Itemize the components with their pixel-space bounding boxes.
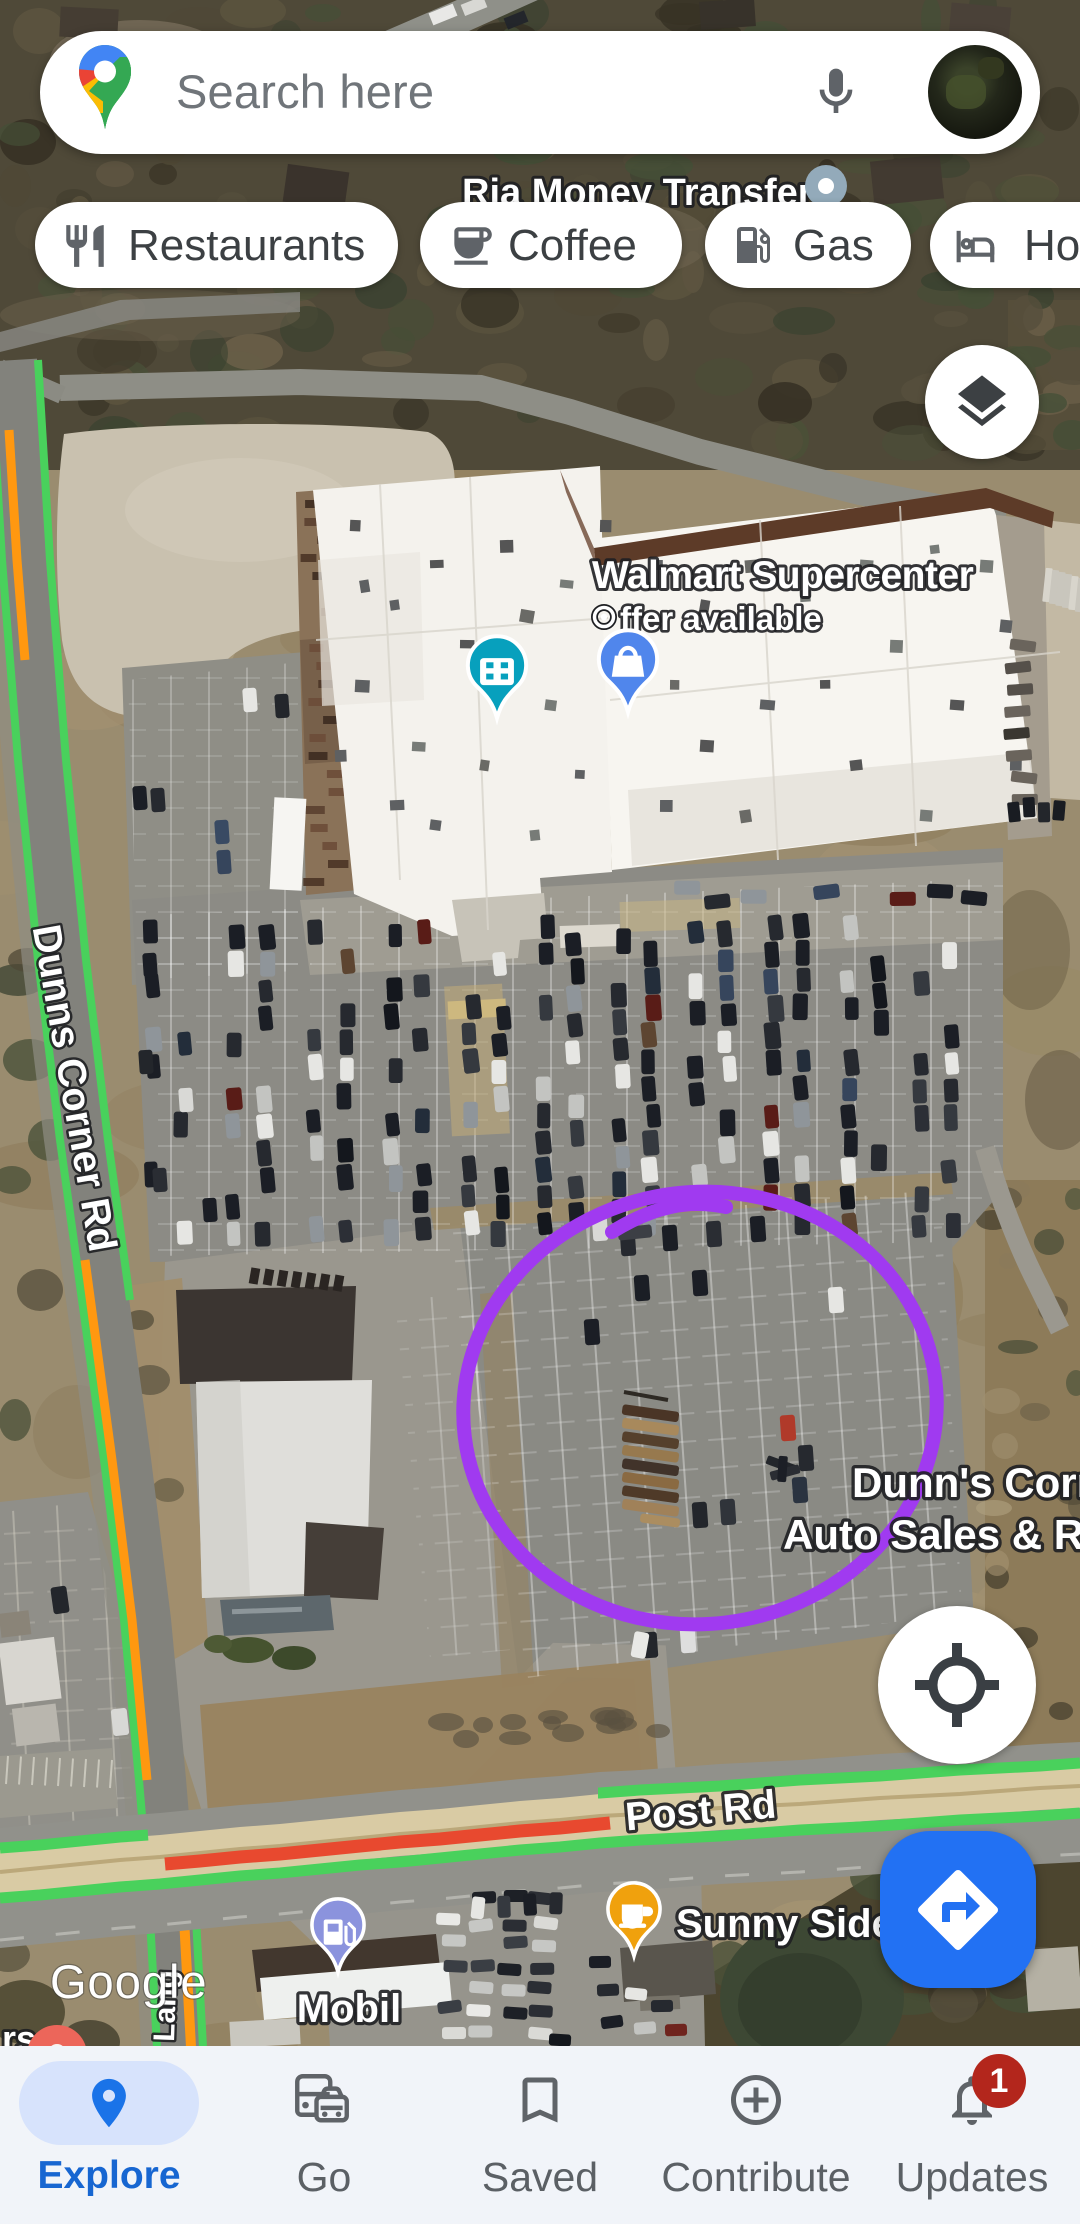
svg-text:Mobil: Mobil [297,1987,401,2031]
svg-text:ffer available: ffer available [620,600,822,637]
svg-text:Auto Sales & Repa: Auto Sales & Repa [783,1511,1080,1558]
svg-text:Google: Google [50,1955,208,2008]
svg-text:Dunn's Corne: Dunn's Corne [852,1459,1080,1506]
svg-text:Walmart Supercenter: Walmart Supercenter [592,554,974,597]
